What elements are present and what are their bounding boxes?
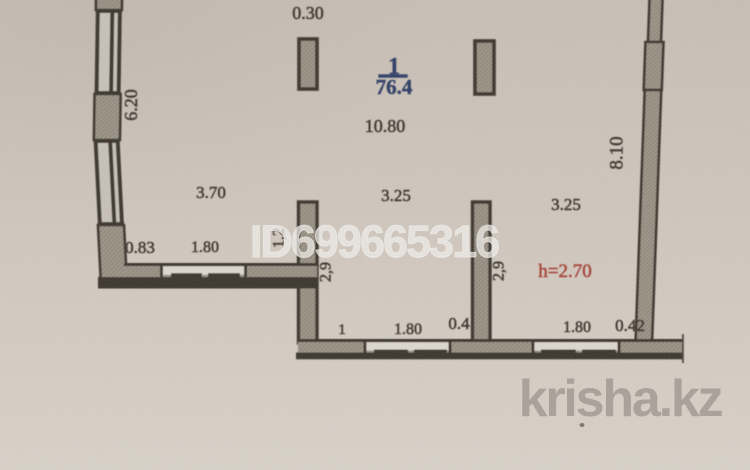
svg-text:10.80: 10.80 [365,116,406,136]
svg-text:0.30: 0.30 [292,3,324,23]
svg-text:0.83: 0.83 [125,238,155,257]
svg-text:3.70: 3.70 [196,183,226,202]
svg-text:3.25: 3.25 [551,195,581,214]
svg-text:1.80: 1.80 [191,239,219,256]
svg-text:0.42: 0.42 [615,316,645,335]
svg-text:1: 1 [338,322,346,338]
svg-text:6.20: 6.20 [121,89,141,121]
svg-text:1.80: 1.80 [394,321,422,338]
svg-text:3.25: 3.25 [381,186,411,205]
svg-text:ID699665316: ID699665316 [250,216,499,267]
svg-text:0.4: 0.4 [448,314,470,333]
svg-text:krisha.kz: krisha.kz [519,370,723,428]
svg-text:1.80: 1.80 [563,319,591,336]
svg-text:h=2.70: h=2.70 [538,261,591,282]
svg-text:76.4: 76.4 [376,75,413,99]
svg-text:8.10: 8.10 [606,136,627,169]
